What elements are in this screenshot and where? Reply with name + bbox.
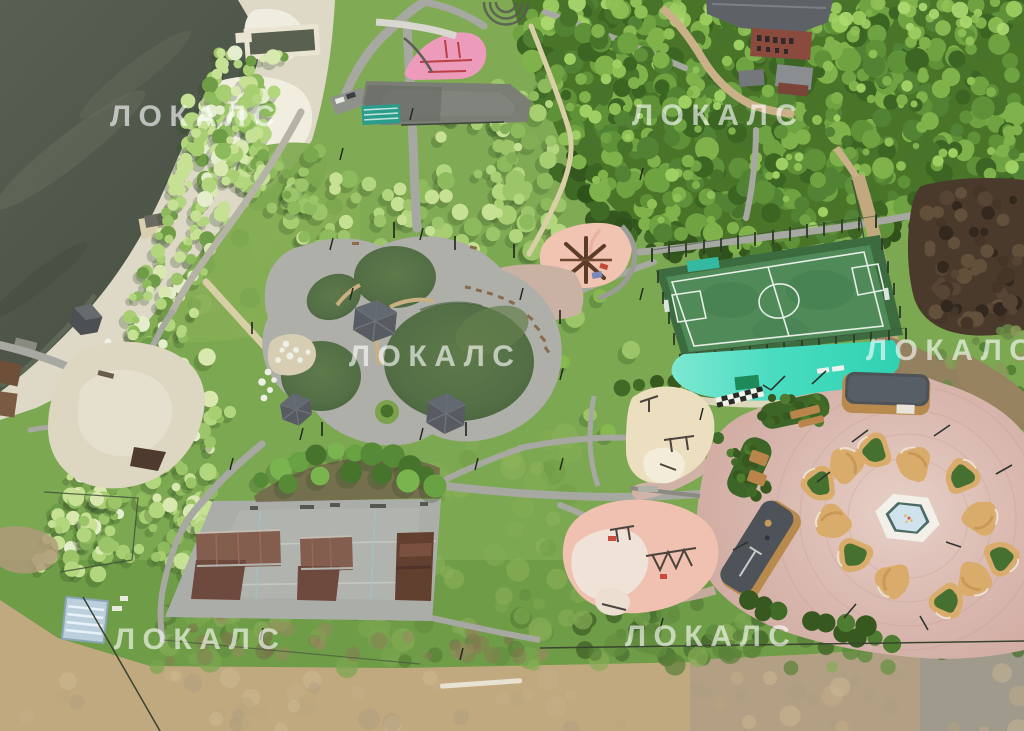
svg-text:ЛОКАЛС: ЛОКАЛС (114, 623, 286, 656)
svg-text:ЛОКАЛС: ЛОКАЛС (110, 100, 282, 133)
svg-text:ЛОКАЛС: ЛОКАЛС (632, 99, 804, 132)
svg-text:ЛОКАЛС: ЛОКАЛС (866, 334, 1024, 367)
svg-text:ЛОКАЛС: ЛОКАЛС (625, 620, 797, 653)
svg-text:ЛОКАЛС: ЛОКАЛС (349, 340, 521, 373)
